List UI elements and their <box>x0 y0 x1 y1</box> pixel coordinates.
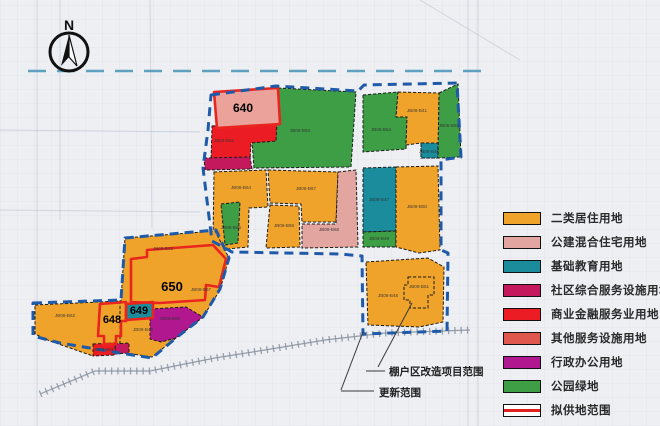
parcel-code-label: JB08-B41 <box>407 108 428 113</box>
compass-needle-light <box>69 35 77 66</box>
parcel-residential-east <box>396 166 440 253</box>
legend-item: 商业金融服务业用地 <box>503 302 659 326</box>
parcel-code-label: JB08-B66 <box>221 225 242 230</box>
background-road <box>420 0 520 60</box>
parcel-code-label: JB08-B64 <box>231 185 252 190</box>
parcel-code-label: JB08-B55 <box>439 123 460 128</box>
block-number-648: 648 <box>103 314 121 326</box>
legend-label: 基础教育用地 <box>551 258 623 274</box>
background-road <box>0 130 200 132</box>
legend-item: 拟供地范围 <box>503 398 659 422</box>
parcel-code-label: JB08-B61 <box>94 347 115 352</box>
legend-label: 行政办公用地 <box>551 354 623 370</box>
legend-label: 二类居住用地 <box>551 210 623 226</box>
legend-label: 公建混合住宅用地 <box>551 234 647 250</box>
parcel-code-label: JB08-B49 <box>369 236 390 241</box>
legend-label: 公园绿地 <box>551 378 599 394</box>
parcel-code-label: JB08-B68 <box>319 227 340 232</box>
legend-swatch <box>503 332 541 345</box>
legend-swatch <box>503 260 541 273</box>
land-use-plan-map: 棚户区改造项目范围更新范围640650649648JB08-B52JB08-B5… <box>0 0 660 426</box>
parcel-code-label: JB08-B60 <box>160 316 181 321</box>
compass-north-label: N <box>64 17 74 33</box>
legend-item: 社区综合服务设施用地 <box>503 278 659 302</box>
legend-swatch <box>503 404 541 417</box>
background-road <box>0 210 200 212</box>
legend-swatch <box>503 356 541 369</box>
parcel-code-label: JB08-B47 <box>369 197 390 202</box>
parcel-code-label: JB08-B53 <box>290 128 311 133</box>
annotation-renewal: 更新范围 <box>379 386 421 399</box>
legend-item: 基础教育用地 <box>503 254 659 278</box>
legend-label: 拟供地范围 <box>551 402 611 418</box>
supply-range-line <box>504 409 540 412</box>
parcel-code-label: JB08-B48 <box>378 293 399 298</box>
parcel-code-label: JB08-B50 <box>407 204 428 209</box>
parcel-code-label: JB08-B46 <box>419 149 440 154</box>
legend-item: 其他服务设施用地 <box>503 326 659 350</box>
parcel-community-sliver <box>204 157 252 170</box>
parcel-code-label: JB08-B45 <box>133 327 154 332</box>
block-number-640: 640 <box>233 101 253 115</box>
legend-item: 公建混合住宅用地 <box>503 230 659 254</box>
legend-swatch <box>503 284 541 297</box>
legend-label: 商业金融服务业用地 <box>551 306 659 322</box>
parcel-code-label: JB08-B65 <box>274 223 295 228</box>
legend-label: 社区综合服务设施用地 <box>551 282 660 298</box>
legend-label: 其他服务设施用地 <box>551 330 647 346</box>
legend-swatch <box>503 308 541 321</box>
block-number-650: 650 <box>161 279 183 294</box>
parcel-code-label: JB08-B63 <box>153 246 174 251</box>
parcel-code-label: JB08-B57 <box>191 287 212 292</box>
parcel-code-label: JB08-B52 <box>214 138 235 143</box>
legend-swatch <box>503 236 541 249</box>
parcel-code-label: JB08-B67 <box>296 186 317 191</box>
legend-swatch <box>503 212 541 225</box>
legend-item: 公园绿地 <box>503 374 659 398</box>
block-number-649: 649 <box>130 305 148 317</box>
compass-needle-dark <box>61 35 69 66</box>
legend: 二类居住用地公建混合住宅用地基础教育用地社区综合服务设施用地商业金融服务业用地其… <box>503 206 659 422</box>
background-road <box>150 0 152 228</box>
parcel-code-label: JB08-B62 <box>55 313 76 318</box>
parcel-residential-mid-left <box>213 170 268 249</box>
parcel-code-label: JB08-B54 <box>371 127 392 132</box>
annotation-shantytown: 棚户区改造项目范围 <box>389 365 484 378</box>
legend-item: 行政办公用地 <box>503 350 659 374</box>
annotation-leader-line <box>341 332 363 390</box>
legend-item: 二类居住用地 <box>503 206 659 230</box>
parcel-code-label: JB08-B51 <box>409 284 430 289</box>
legend-swatch <box>503 380 541 393</box>
